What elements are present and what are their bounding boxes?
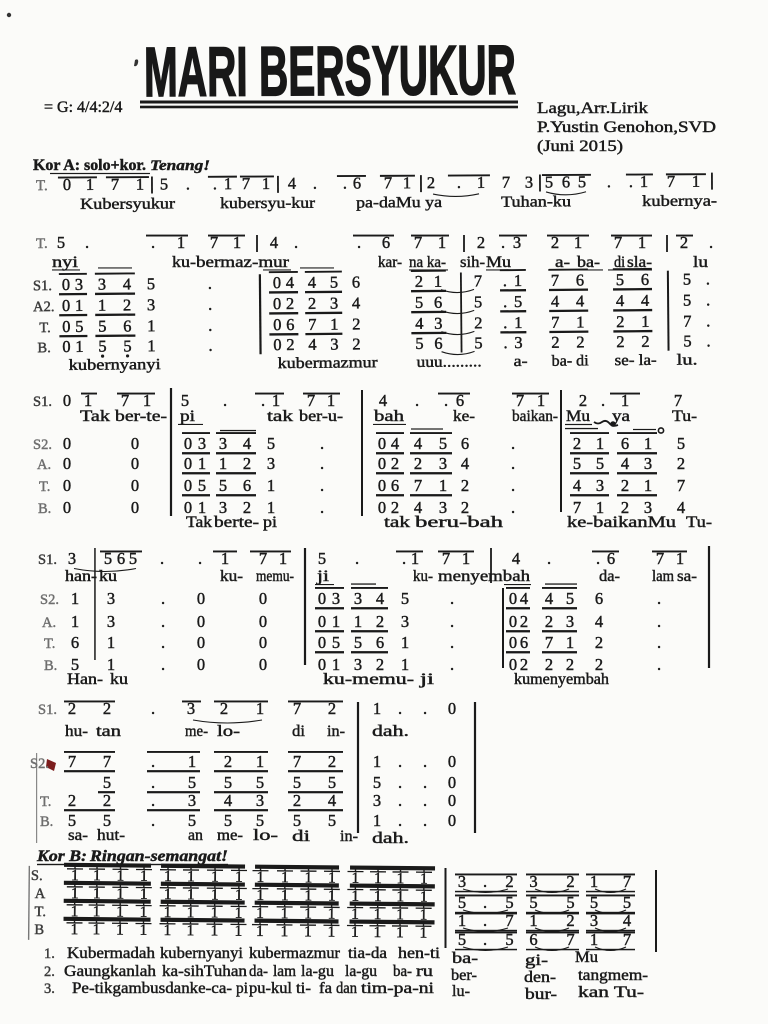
svg-text:5: 5 [683,290,691,309]
svg-text:5: 5 [677,434,685,453]
svg-text:S.: S. [31,868,43,884]
svg-text:6: 6 [621,434,629,453]
svg-text:1.: 1. [44,946,55,962]
svg-text:5: 5 [256,773,264,792]
svg-text:0: 0 [448,752,456,771]
svg-text:4: 4 [621,454,629,473]
svg-text:.: . [423,773,427,792]
svg-text:7: 7 [293,752,301,771]
svg-text:5: 5 [514,292,522,311]
svg-text:0: 0 [509,612,517,631]
svg-text:.: . [709,233,713,252]
svg-text:5: 5 [318,549,326,568]
svg-text:la-gu: la-gu [301,963,334,980]
svg-text:0: 0 [63,476,71,495]
svg-text:3.: 3. [44,981,55,997]
svg-text:.: . [208,336,212,355]
svg-text:7: 7 [545,633,553,652]
svg-text:3: 3 [267,454,275,473]
svg-text:T.: T. [36,178,48,194]
svg-text:ka-sihTuhan: ka-sihTuhan [162,963,247,980]
svg-text:ku: ku [110,671,128,688]
svg-text:an: an [188,827,203,844]
svg-text:.: . [151,752,155,771]
svg-text:5: 5 [267,434,275,453]
svg-text:tia-da: tia-da [348,945,387,962]
svg-text:1: 1 [234,923,242,940]
svg-text:= G: 4/4:2/4: = G: 4/4:2/4 [44,99,122,116]
svg-text:7: 7 [103,752,111,771]
svg-text:3: 3 [354,589,362,608]
svg-text:.: . [320,434,324,453]
svg-text:.: . [706,269,710,288]
svg-text:Mu: Mu [575,949,598,966]
svg-text:.: . [706,331,710,350]
svg-text:kubermazmur: kubermazmur [278,354,379,372]
svg-text:B.: B. [44,658,57,674]
svg-text:5: 5 [332,633,340,652]
svg-text:lo-: lo- [217,723,240,740]
svg-text:5: 5 [474,333,482,352]
svg-text:.: . [657,589,661,608]
svg-text:kubersyu-kur: kubersyu-kur [220,195,316,213]
svg-text:dah.: dah. [372,723,409,740]
svg-text:2: 2 [414,454,422,473]
svg-text:2.: 2. [44,964,55,980]
svg-text:ku-memu-: ku-memu- [323,671,414,688]
svg-text:.: . [208,316,212,335]
svg-text:memu-: memu- [256,568,294,585]
svg-text:pu-kul: pu-kul [249,980,292,997]
svg-text:0: 0 [62,317,70,336]
svg-text:.: . [294,233,298,252]
svg-text:nyi: nyi [52,254,79,271]
svg-text:0: 0 [448,699,456,718]
svg-text:2: 2 [573,434,581,453]
svg-text:5: 5 [354,633,362,652]
svg-text:2: 2 [415,272,423,291]
svg-text:1: 1 [514,271,522,290]
svg-text:.: . [151,791,155,810]
svg-text:Tu-: Tu- [672,408,697,425]
svg-text:3: 3 [107,589,115,608]
svg-text:.: . [223,391,227,410]
svg-text:.: . [503,333,507,352]
svg-text:5: 5 [330,273,338,292]
svg-text:tak: tak [384,514,410,531]
svg-text:.: . [503,292,507,311]
svg-text:3: 3 [596,476,604,495]
svg-text:1: 1 [401,633,409,652]
svg-text:S1.: S1. [33,394,52,410]
svg-text:3: 3 [188,791,196,810]
svg-text:2: 2 [595,633,603,652]
svg-text:2: 2 [641,332,649,351]
svg-text:Kor B:: Kor B: [36,848,87,865]
svg-text:3: 3 [330,335,338,354]
svg-text:den-: den- [524,969,556,986]
svg-text:3: 3 [198,434,206,453]
svg-text:5: 5 [293,773,301,792]
svg-text:1: 1 [71,589,79,608]
svg-text:2: 2 [545,612,553,631]
svg-text:.: . [320,454,324,473]
svg-text:2: 2 [391,454,399,473]
svg-text:.: . [511,454,515,473]
svg-text:0: 0 [259,612,267,631]
svg-text:3: 3 [75,275,83,294]
svg-text:ku-: ku- [220,568,243,585]
svg-text:5: 5 [596,454,604,473]
svg-text:kubernyanyi: kubernyanyi [160,945,244,962]
svg-text:6: 6 [576,270,584,289]
svg-text:han-: han- [65,568,97,585]
svg-text:ba- di: ba- di [552,352,590,369]
svg-text:0: 0 [197,633,205,652]
svg-text:4: 4 [123,274,131,293]
svg-text:4: 4 [328,791,336,810]
svg-text:0: 0 [509,589,517,608]
svg-text:1: 1 [566,633,574,652]
svg-text:lam: lam [273,963,296,980]
svg-text:2: 2 [68,791,76,810]
svg-text:tan: tan [96,723,121,740]
svg-text:4: 4 [573,476,581,495]
svg-text:1: 1 [92,921,100,938]
svg-text:1: 1 [644,434,652,453]
svg-text:1: 1 [514,313,522,332]
svg-text:Tenang!: Tenang! [150,158,210,174]
svg-text:lo-: lo- [253,827,278,844]
svg-text:.: . [657,633,661,652]
svg-text:.: . [450,633,454,652]
svg-text:5: 5 [373,773,381,792]
svg-text:2: 2 [461,476,469,495]
svg-text:0: 0 [184,476,192,495]
svg-text:3: 3 [98,275,106,294]
svg-text:.: . [320,476,324,495]
svg-text:1: 1 [419,924,427,941]
svg-text:4: 4 [243,434,251,453]
svg-text:.: . [398,811,402,830]
svg-text:0: 0 [197,589,205,608]
svg-text:2: 2 [520,612,528,631]
svg-text:2: 2 [474,313,482,332]
svg-text:1: 1 [139,922,147,939]
svg-text:S2.: S2. [33,437,52,453]
svg-text:3: 3 [434,314,442,333]
svg-text:5: 5 [683,269,691,288]
svg-text:5: 5 [75,317,83,336]
svg-text:4: 4 [391,434,399,453]
svg-text:Mu: Mu [486,254,511,271]
svg-text:2: 2 [352,314,360,333]
svg-text:0: 0 [62,275,70,294]
svg-text:1: 1 [75,296,83,315]
svg-text:bermaz-mur: bermaz-mur [196,254,290,271]
svg-text:1: 1 [327,924,335,941]
svg-text:S1.: S1. [33,278,52,294]
svg-text:.: . [398,791,402,810]
svg-text:.: . [198,549,202,568]
svg-text:.: . [423,811,427,830]
svg-text:0: 0 [378,434,386,453]
svg-text:me-: me- [185,723,208,740]
svg-text:tangmem-: tangmem- [578,967,648,984]
svg-text:ku-: ku- [172,254,196,271]
svg-text:.: . [161,589,165,608]
svg-text:1: 1 [330,315,338,334]
svg-text:.: . [320,498,324,517]
svg-text:5: 5 [573,454,581,473]
svg-text:4: 4 [520,589,528,608]
svg-text:da-: da- [249,963,268,980]
svg-text:S1.: S1. [38,552,57,568]
svg-text:hut-: hut- [97,827,125,844]
svg-text:4: 4 [414,434,422,453]
svg-text:2: 2 [293,791,301,810]
svg-text:bur-: bur- [525,986,557,1003]
svg-text:6: 6 [595,589,603,608]
svg-text:.: . [355,549,359,568]
svg-text:0: 0 [63,498,71,517]
svg-text:6: 6 [391,476,399,495]
svg-text:0: 0 [378,476,386,495]
svg-text:.: . [161,655,165,674]
svg-text:3: 3 [107,612,115,631]
svg-text:2: 2 [286,335,294,354]
svg-text:in-: in- [340,828,358,845]
svg-text:3: 3 [332,589,340,608]
svg-text:.: . [503,271,507,290]
svg-text:dan: dan [336,980,357,997]
svg-text:lu-: lu- [452,983,470,1000]
svg-text:baikan-: baikan- [512,408,558,425]
svg-text:.: . [161,633,165,652]
svg-text:.: . [511,434,515,453]
svg-text:.: . [398,752,402,771]
svg-text:Tak: Tak [80,408,110,425]
svg-text:4: 4 [641,291,649,310]
svg-text:.: . [423,791,427,810]
svg-text:T.: T. [39,479,50,495]
svg-text:.: . [706,311,710,330]
svg-text:pi: pi [236,980,249,997]
svg-text:5: 5 [219,476,227,495]
svg-text:1: 1 [256,923,264,940]
svg-text:2: 2 [616,312,624,331]
svg-text:ku-: ku- [413,568,433,585]
svg-text:1: 1 [71,612,79,631]
svg-text:0: 0 [131,476,139,495]
svg-text:.: . [398,699,402,718]
svg-text:2: 2 [308,294,316,313]
svg-text:1: 1 [116,922,124,939]
svg-text:3: 3 [219,434,227,453]
svg-text:0: 0 [184,434,192,453]
svg-text:pi: pi [263,514,278,531]
svg-text:6: 6 [641,270,649,289]
svg-text:menyembah: menyembah [438,568,530,585]
svg-text:6: 6 [434,334,442,353]
svg-text:dah.: dah. [372,830,409,847]
svg-text:4: 4 [308,335,316,354]
svg-text:0: 0 [318,589,326,608]
svg-text:6: 6 [352,272,360,291]
svg-text:B.: B. [37,340,50,356]
svg-text:4: 4 [576,291,584,310]
svg-text:0: 0 [273,315,281,334]
svg-text:.: . [450,612,454,631]
svg-text:7: 7 [677,476,685,495]
svg-text:4: 4 [616,291,624,310]
svg-text:se- la-: se- la- [615,352,657,369]
svg-text:2: 2 [677,454,685,473]
svg-text:hu-: hu- [65,723,88,740]
svg-text:6: 6 [434,293,442,312]
svg-text:B.: B. [40,814,53,830]
svg-text:.: . [706,290,710,309]
svg-text:5: 5 [98,317,106,336]
svg-text:bah: bah [374,408,404,425]
svg-text:ba-: ba- [393,963,412,980]
svg-text:5: 5 [474,292,482,311]
svg-text:5: 5 [188,773,196,792]
svg-text:0: 0 [448,773,456,792]
svg-text:.: . [423,699,427,718]
svg-text:3: 3 [644,454,652,473]
svg-text:ji: ji [316,568,330,585]
svg-text:0: 0 [509,633,517,652]
svg-text:4: 4 [545,589,553,608]
svg-text:1: 1 [75,337,83,356]
svg-text:1: 1 [107,633,115,652]
svg-text:3: 3 [514,333,522,352]
svg-text:kubermazmur: kubermazmur [249,945,341,962]
svg-text:1: 1 [256,752,264,771]
svg-text:A.: A. [42,615,56,631]
svg-text:0: 0 [318,612,326,631]
svg-text:0: 0 [131,498,139,517]
svg-text:ku: ku [99,568,117,585]
svg-text:0: 0 [273,335,281,354]
svg-text:Tak: Tak [186,514,212,531]
svg-text:sa-: sa- [68,827,88,844]
svg-text:1: 1 [219,454,227,473]
svg-text:Gaungkanlah: Gaungkanlah [64,963,156,980]
svg-text:0: 0 [197,612,205,631]
svg-text:2: 2 [243,454,251,473]
svg-text:.: . [607,172,611,191]
svg-text:6: 6 [71,633,79,652]
svg-text:0: 0 [131,434,139,453]
svg-text:A2.: A2. [33,299,54,315]
svg-text:0: 0 [273,294,281,313]
svg-text:1: 1 [576,312,584,331]
svg-text:S2.: S2. [40,592,59,608]
svg-text:3: 3 [147,295,155,314]
svg-text:0: 0 [259,633,267,652]
svg-text:Han-: Han- [67,671,103,688]
svg-text:1: 1 [373,811,381,830]
svg-text:3: 3 [68,549,76,568]
svg-text:a-: a- [555,254,570,271]
svg-text:.: . [423,752,427,771]
svg-text:2: 2 [621,476,629,495]
svg-text:6: 6 [243,476,251,495]
svg-text:.: . [151,699,155,718]
svg-text:2: 2 [477,233,485,252]
svg-text:5: 5 [439,434,447,453]
svg-text:1: 1 [70,921,78,938]
svg-text:A: A [35,886,46,902]
svg-text:pi: pi [180,408,196,425]
svg-text:B.: B. [38,501,51,517]
svg-text:.: . [511,498,515,517]
svg-text:S2.: S2. [30,756,49,772]
svg-text:3: 3 [256,791,264,810]
svg-text:2: 2 [224,752,232,771]
svg-text:6: 6 [376,633,384,652]
svg-text:berte-: berte- [214,514,259,531]
svg-text:.: . [657,655,661,674]
svg-text:fa: fa [319,980,332,997]
svg-text:0: 0 [259,589,267,608]
svg-text:A.: A. [37,457,51,473]
svg-text:3: 3 [525,173,533,192]
svg-text:ti-: ti- [296,980,311,997]
svg-text:T.: T. [40,794,51,810]
svg-text:1: 1 [280,923,288,940]
svg-text:.: . [208,295,212,314]
svg-text:2: 2 [352,334,360,353]
svg-text:ber-u-: ber-u- [299,408,343,425]
svg-text:2: 2 [286,294,294,313]
svg-text:lam: lam [652,568,674,585]
svg-text:5: 5 [98,337,106,356]
svg-text:P.Yustin Genohon,SVD: P.Yustin Genohon,SVD [537,119,716,136]
svg-text:na ka-: na ka- [409,254,446,271]
svg-text:.: . [601,391,605,410]
svg-text:4: 4 [270,233,278,252]
svg-text:1: 1 [373,699,381,718]
svg-text:Lagu,Arr.Lirik: Lagu,Arr.Lirik [537,100,648,117]
svg-text:3: 3 [439,454,447,473]
svg-text:4: 4 [286,273,294,292]
svg-text:0: 0 [273,273,281,292]
svg-text:.: . [160,549,164,568]
svg-text:1: 1 [373,924,381,941]
svg-text:7: 7 [308,315,316,334]
svg-text:5: 5 [328,811,336,830]
svg-text:3: 3 [401,612,409,631]
svg-text:3: 3 [330,294,338,313]
svg-text:Tu-: Tu- [686,514,712,531]
svg-text:2: 2 [328,752,336,771]
svg-text:kan Tu-: kan Tu- [578,984,644,1001]
svg-text:S1.: S1. [38,702,57,718]
svg-text:4: 4 [677,498,685,517]
svg-text:1: 1 [439,476,447,495]
svg-text:ber-: ber- [451,967,477,984]
svg-text:1: 1 [354,612,362,631]
svg-text:5: 5 [103,773,111,792]
svg-text:Kubermadah: Kubermadah [67,945,155,962]
svg-text:7: 7 [551,271,559,290]
svg-text:5: 5 [328,773,336,792]
svg-text:.: . [398,773,402,792]
svg-text:0: 0 [131,454,139,473]
